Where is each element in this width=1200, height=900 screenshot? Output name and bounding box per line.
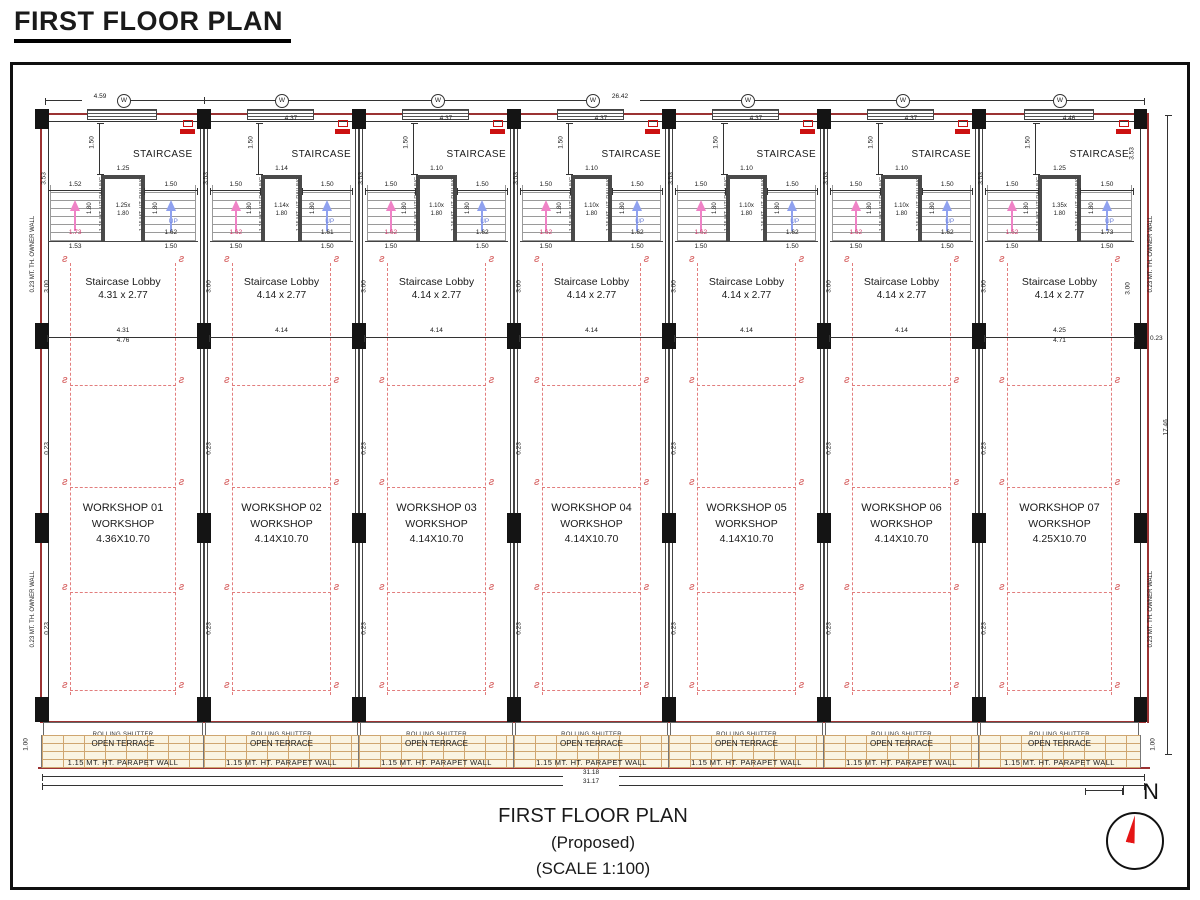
vent-icon — [335, 120, 351, 134]
rolling-shutter: ROLLING SHUTTER — [980, 722, 1139, 736]
unit-bay: 4.37 1.50 STAIRCASE 3.53 1.15 MT. HT. RA… — [824, 113, 979, 768]
dashed-outline-left — [1007, 263, 1008, 695]
flight-dim-line — [520, 190, 571, 191]
break-symbol-icon — [534, 479, 539, 487]
break-symbol-icon — [999, 584, 1004, 592]
dashed-rail — [852, 385, 951, 386]
dim-well-width: 1.25 — [102, 166, 144, 173]
owner-wall-label: 0.23 MT. TH. OWNER WALL — [1148, 199, 1154, 309]
dim-lobby-b: 4.71 — [1011, 338, 1108, 345]
dim-stair-depth: 3.53 — [359, 166, 366, 190]
dashed-outline-left — [697, 263, 698, 695]
dashed-rail — [70, 690, 176, 691]
workshop-sublabel: WORKSHOP — [514, 519, 669, 530]
dashed-rail — [387, 385, 486, 386]
window-icon — [87, 109, 157, 120]
stair-offset-dim-line — [1035, 123, 1036, 175]
dim-bay-width: 4.37 — [905, 116, 918, 123]
dashed-rail — [232, 690, 331, 691]
floor-plan: 4.59 26.42 17.46 0.23 3.53 3.00 0.23 MT.… — [0, 0, 1200, 900]
break-symbol-icon — [334, 479, 339, 487]
lobby-size: 4.14 x 2.77 — [669, 291, 824, 302]
column — [35, 109, 49, 129]
break-symbol-icon — [799, 479, 804, 487]
break-symbol-icon — [844, 584, 849, 592]
dim-right-run: 1.61 — [305, 230, 350, 237]
vent-icon — [1116, 120, 1132, 134]
dim-flight-length: 1.80 — [866, 198, 872, 218]
dim-wall-thickness: 0.23 — [362, 437, 369, 459]
flight-dim-line — [1080, 190, 1133, 191]
dim-flight-length: 1.80 — [87, 198, 93, 218]
break-symbol-icon — [1115, 479, 1120, 487]
break-symbol-icon — [689, 377, 694, 385]
up-label: UP — [1105, 219, 1114, 226]
break-symbol-icon — [489, 682, 494, 690]
window-mark: W — [431, 94, 445, 108]
window-mark: W — [275, 94, 289, 108]
dim-lobby-a: 4.31 — [74, 328, 171, 335]
parapet-label: 1.15 MT. HT. PARAPET WALL — [979, 758, 1140, 767]
dim-well-width: 1.10 — [881, 166, 921, 173]
dim-lobby-height: 3.00 — [827, 274, 834, 298]
workshop-sublabel: WORKSHOP — [824, 519, 979, 530]
lobby-size: 4.14 x 2.77 — [204, 291, 359, 302]
dim-lobby-height: 3.00 — [362, 274, 369, 298]
stair-offset-dim-line — [99, 123, 100, 175]
up-label: UP — [635, 219, 644, 226]
dim-stair-depth: 3.53 — [824, 166, 831, 190]
lobby-label: Staircase Lobby — [669, 277, 824, 288]
flight-down-arrow-icon — [231, 200, 241, 231]
window-icon — [402, 109, 469, 120]
dim-right-run: 1.62 — [925, 230, 970, 237]
lobby-label: Staircase Lobby — [42, 277, 204, 288]
break-symbol-icon — [534, 584, 539, 592]
staircase-label: STAIRCASE — [1070, 150, 1130, 161]
dim-left-base: 1.50 — [523, 244, 568, 251]
dim-well-width: 1.25 — [1039, 166, 1081, 173]
flight-dim-line — [612, 190, 663, 191]
break-symbol-icon — [689, 479, 694, 487]
break-symbol-icon — [489, 479, 494, 487]
dashed-rail — [542, 690, 641, 691]
open-terrace: OPEN TERRACE 1.15 MT. HT. PARAPET WALL — [513, 735, 670, 768]
dim-wall-thickness: 0.23 — [207, 617, 214, 639]
workshop-size: 4.14X10.70 — [204, 534, 359, 545]
dashed-rail — [1007, 487, 1112, 488]
unit-bay: 4.46 1.50 STAIRCASE 3.53 1.15 MT. HT. RA… — [979, 113, 1140, 768]
dim-left-base: 1.50 — [368, 244, 413, 251]
dim-left-run: 1.62 — [989, 230, 1036, 237]
dim-stair-offset: 1.50 — [1026, 130, 1033, 154]
window-mark: W — [741, 94, 755, 108]
stair-base-line — [675, 241, 818, 242]
dim-flight-length: 1.80 — [711, 198, 717, 218]
break-symbol-icon — [1115, 256, 1120, 264]
lobby-dim-line — [829, 337, 975, 338]
dim-flight-length: 1.80 — [153, 198, 159, 218]
workshop-sublabel: WORKSHOP — [359, 519, 514, 530]
stair-base-line — [48, 241, 197, 242]
dashed-outline-left — [542, 263, 543, 695]
dim-left-base: 1.53 — [52, 244, 99, 251]
well-size-label: 1.14x — [261, 203, 301, 209]
dim-lobby-height: 3.00 — [672, 274, 679, 298]
break-symbol-icon — [999, 682, 1004, 690]
dim-flight-length: 1.80 — [465, 198, 471, 218]
lobby-size: 4.14 x 2.77 — [824, 291, 979, 302]
workshop-name: WORKSHOP 07 — [979, 503, 1140, 515]
dim-bay-width: 4.37 — [285, 116, 298, 123]
dim-stair-depth: 3.53 — [979, 166, 986, 190]
dim-flight-length: 1.80 — [401, 198, 407, 218]
window-icon — [712, 109, 779, 120]
dim-right-flight: 1.50 — [147, 182, 194, 189]
break-symbol-icon — [689, 584, 694, 592]
flight-up-arrow-icon — [942, 200, 952, 231]
dim-left-flight: 1.50 — [833, 182, 878, 189]
break-symbol-icon — [954, 479, 959, 487]
flight-down-arrow-icon — [851, 200, 861, 231]
dim-wall-thickness: 0.23 — [672, 437, 679, 459]
dim-wall-thickness: 0.23 — [517, 617, 524, 639]
column — [972, 109, 986, 129]
owner-wall-label: 0.23 MT. TH. OWNER WALL — [30, 199, 36, 309]
dashed-outline-right — [1111, 263, 1112, 695]
flight-down-arrow-icon — [70, 200, 80, 231]
dim-left-base: 1.50 — [989, 244, 1036, 251]
dashed-rail — [232, 385, 331, 386]
dashed-outline-left — [387, 263, 388, 695]
flight-down-arrow-icon — [386, 200, 396, 231]
vent-icon — [645, 120, 661, 134]
rolling-shutter: ROLLING SHUTTER — [43, 722, 203, 736]
flight-down-arrow-icon — [1007, 200, 1017, 231]
workshop-size: 4.36X10.70 — [42, 534, 204, 545]
workshop-size: 4.14X10.70 — [669, 534, 824, 545]
break-symbol-icon — [644, 256, 649, 264]
break-symbol-icon — [1115, 584, 1120, 592]
dim-right-base: 1.50 — [770, 244, 815, 251]
break-symbol-icon — [844, 377, 849, 385]
break-symbol-icon — [224, 479, 229, 487]
well-size-label: 1.80 — [571, 211, 611, 217]
break-symbol-icon — [534, 377, 539, 385]
north-arrow-icon — [1106, 812, 1164, 870]
dashed-rail — [1007, 592, 1112, 593]
workshop-size: 4.25X10.70 — [979, 534, 1140, 545]
break-symbol-icon — [954, 584, 959, 592]
flight-down-arrow-icon — [696, 200, 706, 231]
break-symbol-icon — [999, 256, 1004, 264]
flight-dim-line — [985, 190, 1038, 191]
lobby-label: Staircase Lobby — [514, 277, 669, 288]
break-symbol-icon — [954, 682, 959, 690]
dim-bay-width: 4.37 — [750, 116, 763, 123]
dim-stair-offset: 1.50 — [714, 130, 721, 154]
dashed-rail — [852, 592, 951, 593]
up-label: UP — [945, 219, 954, 226]
parapet-label: 1.15 MT. HT. PARAPET WALL — [514, 758, 669, 767]
dim-bay-width: 4.37 — [440, 116, 453, 123]
window-icon — [247, 109, 314, 120]
dim-lobby-b: 4.76 — [74, 338, 171, 345]
column — [507, 109, 521, 129]
break-symbol-icon — [799, 682, 804, 690]
dim-right-run: 1.62 — [770, 230, 815, 237]
dim-lobby-a: 4.14 — [855, 328, 948, 335]
dashed-outline-right — [950, 263, 951, 695]
flight-down-arrow-icon — [541, 200, 551, 231]
flight-up-arrow-icon — [322, 200, 332, 231]
window-icon — [557, 109, 624, 120]
flight-dim-line — [675, 190, 726, 191]
window-mark: W — [117, 94, 131, 108]
open-terrace: OPEN TERRACE 1.15 MT. HT. PARAPET WALL — [823, 735, 980, 768]
dim-flight-length: 1.80 — [246, 198, 252, 218]
dim-right-run: 1.62 — [460, 230, 505, 237]
break-symbol-icon — [799, 584, 804, 592]
break-symbol-icon — [999, 479, 1004, 487]
break-symbol-icon — [644, 584, 649, 592]
stair-base-line — [985, 241, 1133, 242]
break-symbol-icon — [799, 377, 804, 385]
flight-dim-line — [767, 190, 818, 191]
stair-offset-dim-line — [723, 123, 724, 175]
column — [817, 697, 831, 722]
parapet-label: 1.15 MT. HT. PARAPET WALL — [359, 758, 514, 767]
flight-dim-line — [144, 190, 197, 191]
break-symbol-icon — [1115, 377, 1120, 385]
flight-dim-line — [365, 190, 416, 191]
break-symbol-icon — [954, 256, 959, 264]
workshop-name: WORKSHOP 01 — [42, 503, 204, 515]
vent-icon — [800, 120, 816, 134]
break-symbol-icon — [62, 584, 67, 592]
workshop-name: WORKSHOP 04 — [514, 503, 669, 515]
staircase-label: STAIRCASE — [447, 150, 507, 161]
dim-right-flight: 1.50 — [925, 182, 970, 189]
open-terrace: OPEN TERRACE 1.15 MT. HT. PARAPET WALL — [978, 735, 1141, 768]
dashed-rail — [852, 487, 951, 488]
break-symbol-icon — [62, 682, 67, 690]
dim-left-run: 1.62 — [213, 230, 258, 237]
dim-lobby-a: 4.14 — [700, 328, 793, 335]
well-size-label: 1.80 — [261, 211, 301, 217]
parapet-label: 1.15 MT. HT. PARAPET WALL — [204, 758, 359, 767]
dim-flight-length: 1.80 — [556, 198, 562, 218]
dim-bottom-outer: 31.18 — [563, 770, 619, 777]
parapet-label: 1.15 MT. HT. PARAPET WALL — [42, 758, 204, 767]
dim-lobby-height: 3.00 — [207, 274, 214, 298]
dim-terrace-depth: 1.00 — [1151, 734, 1158, 754]
north-label: N — [1143, 779, 1159, 805]
dashed-rail — [697, 690, 796, 691]
staircase-label: STAIRCASE — [133, 150, 193, 161]
open-terrace-label: OPEN TERRACE — [42, 739, 204, 748]
dashed-rail — [1007, 690, 1112, 691]
well-size-label: 1.10x — [726, 203, 766, 209]
flight-up-arrow-icon — [477, 200, 487, 231]
open-terrace-label: OPEN TERRACE — [204, 739, 359, 748]
dashed-rail — [852, 690, 951, 691]
plan-caption-title: FIRST FLOOR PLAN — [408, 806, 778, 827]
staircase-label: STAIRCASE — [602, 150, 662, 161]
dim-wall-thickness: 0.23 — [982, 617, 989, 639]
dim-left-base: 1.50 — [678, 244, 723, 251]
dim-left-base: 1.50 — [833, 244, 878, 251]
flight-dim-line — [48, 190, 101, 191]
workshop-name: WORKSHOP 06 — [824, 503, 979, 515]
dim-flight-length: 1.80 — [620, 198, 626, 218]
dim-stair-offset: 1.50 — [869, 130, 876, 154]
up-label: UP — [169, 219, 178, 226]
break-symbol-icon — [224, 584, 229, 592]
lobby-size: 4.14 x 2.77 — [514, 291, 669, 302]
dim-wall-thickness: 0.23 — [1150, 336, 1163, 343]
flight-up-arrow-icon — [632, 200, 642, 231]
break-symbol-icon — [534, 682, 539, 690]
workshop-name: WORKSHOP 03 — [359, 503, 514, 515]
staircase-label: STAIRCASE — [292, 150, 352, 161]
lobby-label: Staircase Lobby — [824, 277, 979, 288]
dim-wall-thickness: 0.23 — [517, 437, 524, 459]
dim-wall-thickness: 0.23 — [982, 437, 989, 459]
dim-bottom-inner: 31.17 — [563, 779, 619, 786]
plan-caption-status: (Proposed) — [408, 834, 778, 852]
unit-bay: 4.37 1.50 STAIRCASE 3.53 1.15 MT. HT. RA… — [204, 113, 359, 768]
break-symbol-icon — [224, 682, 229, 690]
dimension-tick — [1123, 785, 1124, 795]
dim-lobby-a: 4.14 — [545, 328, 638, 335]
dim-well-width: 1.10 — [416, 166, 456, 173]
break-symbol-icon — [179, 256, 184, 264]
dim-wall-thickness: 0.23 — [45, 437, 52, 459]
stair-base-line — [210, 241, 353, 242]
break-symbol-icon — [379, 682, 384, 690]
dashed-outline-right — [795, 263, 796, 695]
vent-icon — [955, 120, 971, 134]
lobby-dim-line — [674, 337, 820, 338]
dim-right-base: 1.50 — [305, 244, 350, 251]
break-symbol-icon — [62, 479, 67, 487]
dim-well-width: 1.10 — [571, 166, 611, 173]
dim-right-base: 1.50 — [147, 244, 194, 251]
dim-left-flight: 1.50 — [213, 182, 258, 189]
break-symbol-icon — [689, 682, 694, 690]
vent-icon — [490, 120, 506, 134]
dim-right-base: 1.50 — [460, 244, 505, 251]
dim-right-flight: 1.50 — [615, 182, 660, 189]
dim-well-width: 1.10 — [726, 166, 766, 173]
break-symbol-icon — [489, 256, 494, 264]
dim-lobby-height: 3.00 — [517, 274, 524, 298]
break-symbol-icon — [489, 584, 494, 592]
column — [972, 697, 986, 722]
dimension-tick-line — [1085, 790, 1123, 791]
unit-bay: 4.37 1.50 STAIRCASE 3.53 1.15 MT. HT. RA… — [669, 113, 824, 768]
dim-stair-offset: 1.50 — [89, 130, 96, 154]
break-symbol-icon — [379, 256, 384, 264]
column — [507, 697, 521, 722]
break-symbol-icon — [844, 256, 849, 264]
well-size-label: 1.80 — [102, 211, 144, 217]
break-symbol-icon — [179, 479, 184, 487]
workshop-sublabel: WORKSHOP — [42, 519, 204, 530]
dim-wall-thickness: 0.23 — [45, 617, 52, 639]
well-size-label: 1.10x — [416, 203, 456, 209]
dim-right-run: 1.73 — [1084, 230, 1131, 237]
column — [817, 109, 831, 129]
dim-terrace-depth: 1.00 — [24, 734, 31, 754]
stair-base-line — [830, 241, 973, 242]
well-size-label: 1.80 — [1039, 211, 1081, 217]
flight-up-arrow-icon — [1102, 200, 1112, 231]
break-symbol-icon — [334, 682, 339, 690]
owner-wall-label: 0.23 MT. TH. OWNER WALL — [30, 554, 36, 664]
dim-stair-depth: 3.53 — [42, 166, 49, 190]
dim-right-flight: 1.50 — [305, 182, 350, 189]
flight-up-arrow-icon — [787, 200, 797, 231]
dim-bay-width: 4.37 — [595, 116, 608, 123]
dim-right-base: 1.50 — [615, 244, 660, 251]
dim-left-run: 1.73 — [52, 230, 99, 237]
rolling-shutter: ROLLING SHUTTER — [360, 722, 513, 736]
dashed-rail — [70, 385, 176, 386]
break-symbol-icon — [179, 377, 184, 385]
dim-right-flight: 1.50 — [460, 182, 505, 189]
dim-right-base: 1.50 — [925, 244, 970, 251]
dim-left-run: 1.62 — [368, 230, 413, 237]
dim-right-flight: 1.50 — [1084, 182, 1131, 189]
lobby-dim-line — [209, 337, 355, 338]
dim-flight-length: 1.80 — [775, 198, 781, 218]
column — [662, 109, 676, 129]
dim-bay-width: 4.46 — [1063, 116, 1076, 123]
dashed-rail — [387, 487, 486, 488]
dim-right-total: 17.46 — [1164, 412, 1171, 442]
rolling-shutter: ROLLING SHUTTER — [515, 722, 668, 736]
well-size-label: 1.80 — [726, 211, 766, 217]
flight-dim-line — [302, 190, 353, 191]
dim-wall-thickness: 0.23 — [827, 437, 834, 459]
vent-icon — [180, 120, 196, 134]
up-label: UP — [790, 219, 799, 226]
open-terrace-label: OPEN TERRACE — [979, 739, 1140, 748]
stair-offset-dim-line — [413, 123, 414, 175]
dim-stair-offset: 1.50 — [249, 130, 256, 154]
well-size-label: 1.10x — [881, 203, 921, 209]
flight-dim-line — [210, 190, 261, 191]
dim-flight-length: 1.80 — [1024, 198, 1030, 218]
dim-lobby-a: 4.14 — [390, 328, 483, 335]
break-symbol-icon — [644, 682, 649, 690]
dim-lobby-height: 3.00 — [982, 274, 989, 298]
break-symbol-icon — [999, 377, 1004, 385]
owner-wall-label: 0.23 MT. TH. OWNER WALL — [1148, 554, 1154, 664]
dashed-rail — [697, 487, 796, 488]
lobby-dim-line — [519, 337, 665, 338]
dim-wall-thickness: 0.23 — [362, 617, 369, 639]
rolling-shutter: ROLLING SHUTTER — [205, 722, 358, 736]
lobby-size: 4.31 x 2.77 — [42, 291, 204, 302]
dim-stair-depth: 3.53 — [514, 166, 521, 190]
column — [352, 697, 366, 722]
workshop-sublabel: WORKSHOP — [979, 519, 1140, 530]
dashed-rail — [697, 385, 796, 386]
staircase-label: STAIRCASE — [757, 150, 817, 161]
